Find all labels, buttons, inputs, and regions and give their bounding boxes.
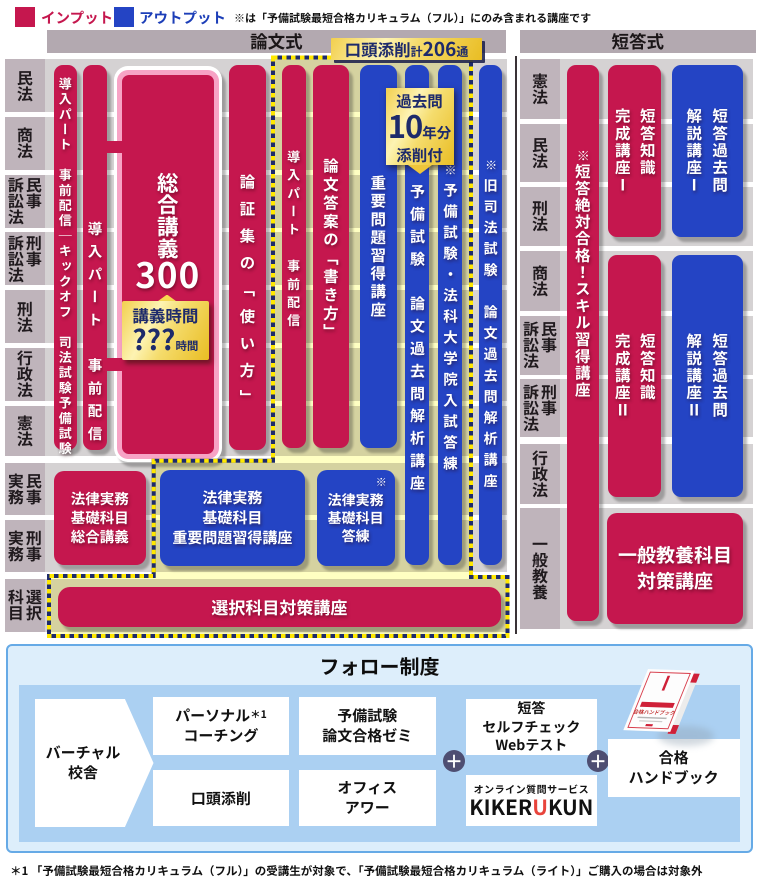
svg-text:合格ハンドブック: 合格ハンドブック: [632, 708, 677, 717]
